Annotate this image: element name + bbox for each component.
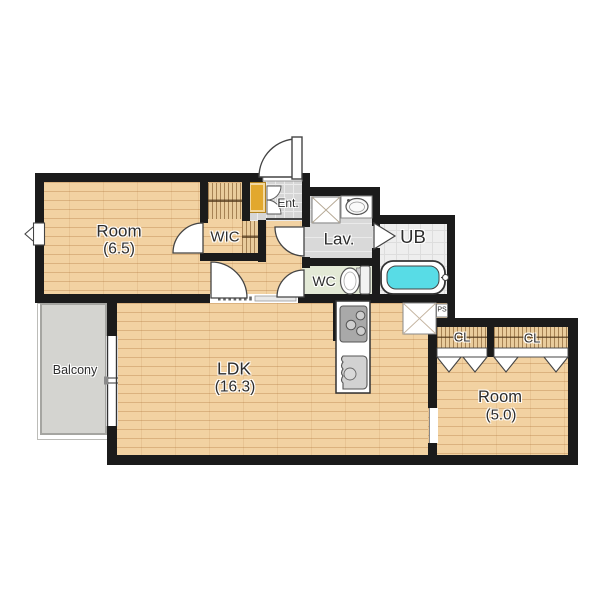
wall-segment	[35, 173, 44, 225]
floor-plan: Room (6.5) WIC Ent. Lav. UB WC LDK (16.3…	[0, 0, 600, 600]
ub-label: UB	[400, 228, 426, 247]
cl1-label: CL	[454, 331, 471, 344]
wall-segment	[487, 318, 494, 357]
wic-label: WIC	[210, 230, 239, 245]
wall-segment	[35, 294, 210, 303]
lav-label: Lav.	[324, 231, 355, 248]
wall-segment	[333, 303, 339, 341]
wall-segment	[302, 173, 310, 227]
wall-segment	[302, 258, 378, 266]
wall-segment	[447, 215, 455, 327]
room1-label: Room	[96, 223, 141, 240]
wall-segment	[568, 318, 578, 465]
wall-segment	[372, 215, 455, 224]
entrance-label: Ent.	[277, 197, 298, 209]
ldk-size-label: (16.3)	[215, 379, 256, 395]
wall-segment	[428, 443, 437, 465]
wc-label: WC	[312, 274, 335, 288]
hall-closet-hanger-area	[242, 221, 258, 253]
lav-floor	[302, 187, 380, 266]
cl2-label: CL	[524, 332, 541, 345]
shoe-cabinet	[248, 182, 266, 213]
hall-ldk-threshold	[210, 294, 298, 303]
room1-size-label: (6.5)	[103, 241, 135, 257]
wall-segment	[107, 455, 578, 465]
wall-segment	[35, 173, 263, 182]
wall-segment	[302, 187, 380, 196]
wall-segment	[298, 294, 455, 303]
wall-segment	[107, 426, 117, 456]
room2-door-opening	[429, 408, 438, 443]
wall-segment	[200, 253, 266, 261]
ps-label: PS	[437, 307, 446, 314]
ldk-label: LDK	[217, 360, 251, 378]
ldk-floor	[107, 294, 455, 464]
wic-hanger-area	[208, 183, 242, 219]
room2-label: Room	[478, 389, 522, 406]
wall-segment	[428, 318, 437, 408]
wall-segment	[107, 303, 117, 336]
balcony-label: Balcony	[53, 364, 97, 377]
entrance-step-edge	[266, 218, 302, 220]
wall-segment	[200, 181, 208, 223]
wall-segment	[428, 318, 578, 327]
wall-segment	[242, 181, 250, 221]
room2-size-label: (5.0)	[486, 408, 517, 423]
